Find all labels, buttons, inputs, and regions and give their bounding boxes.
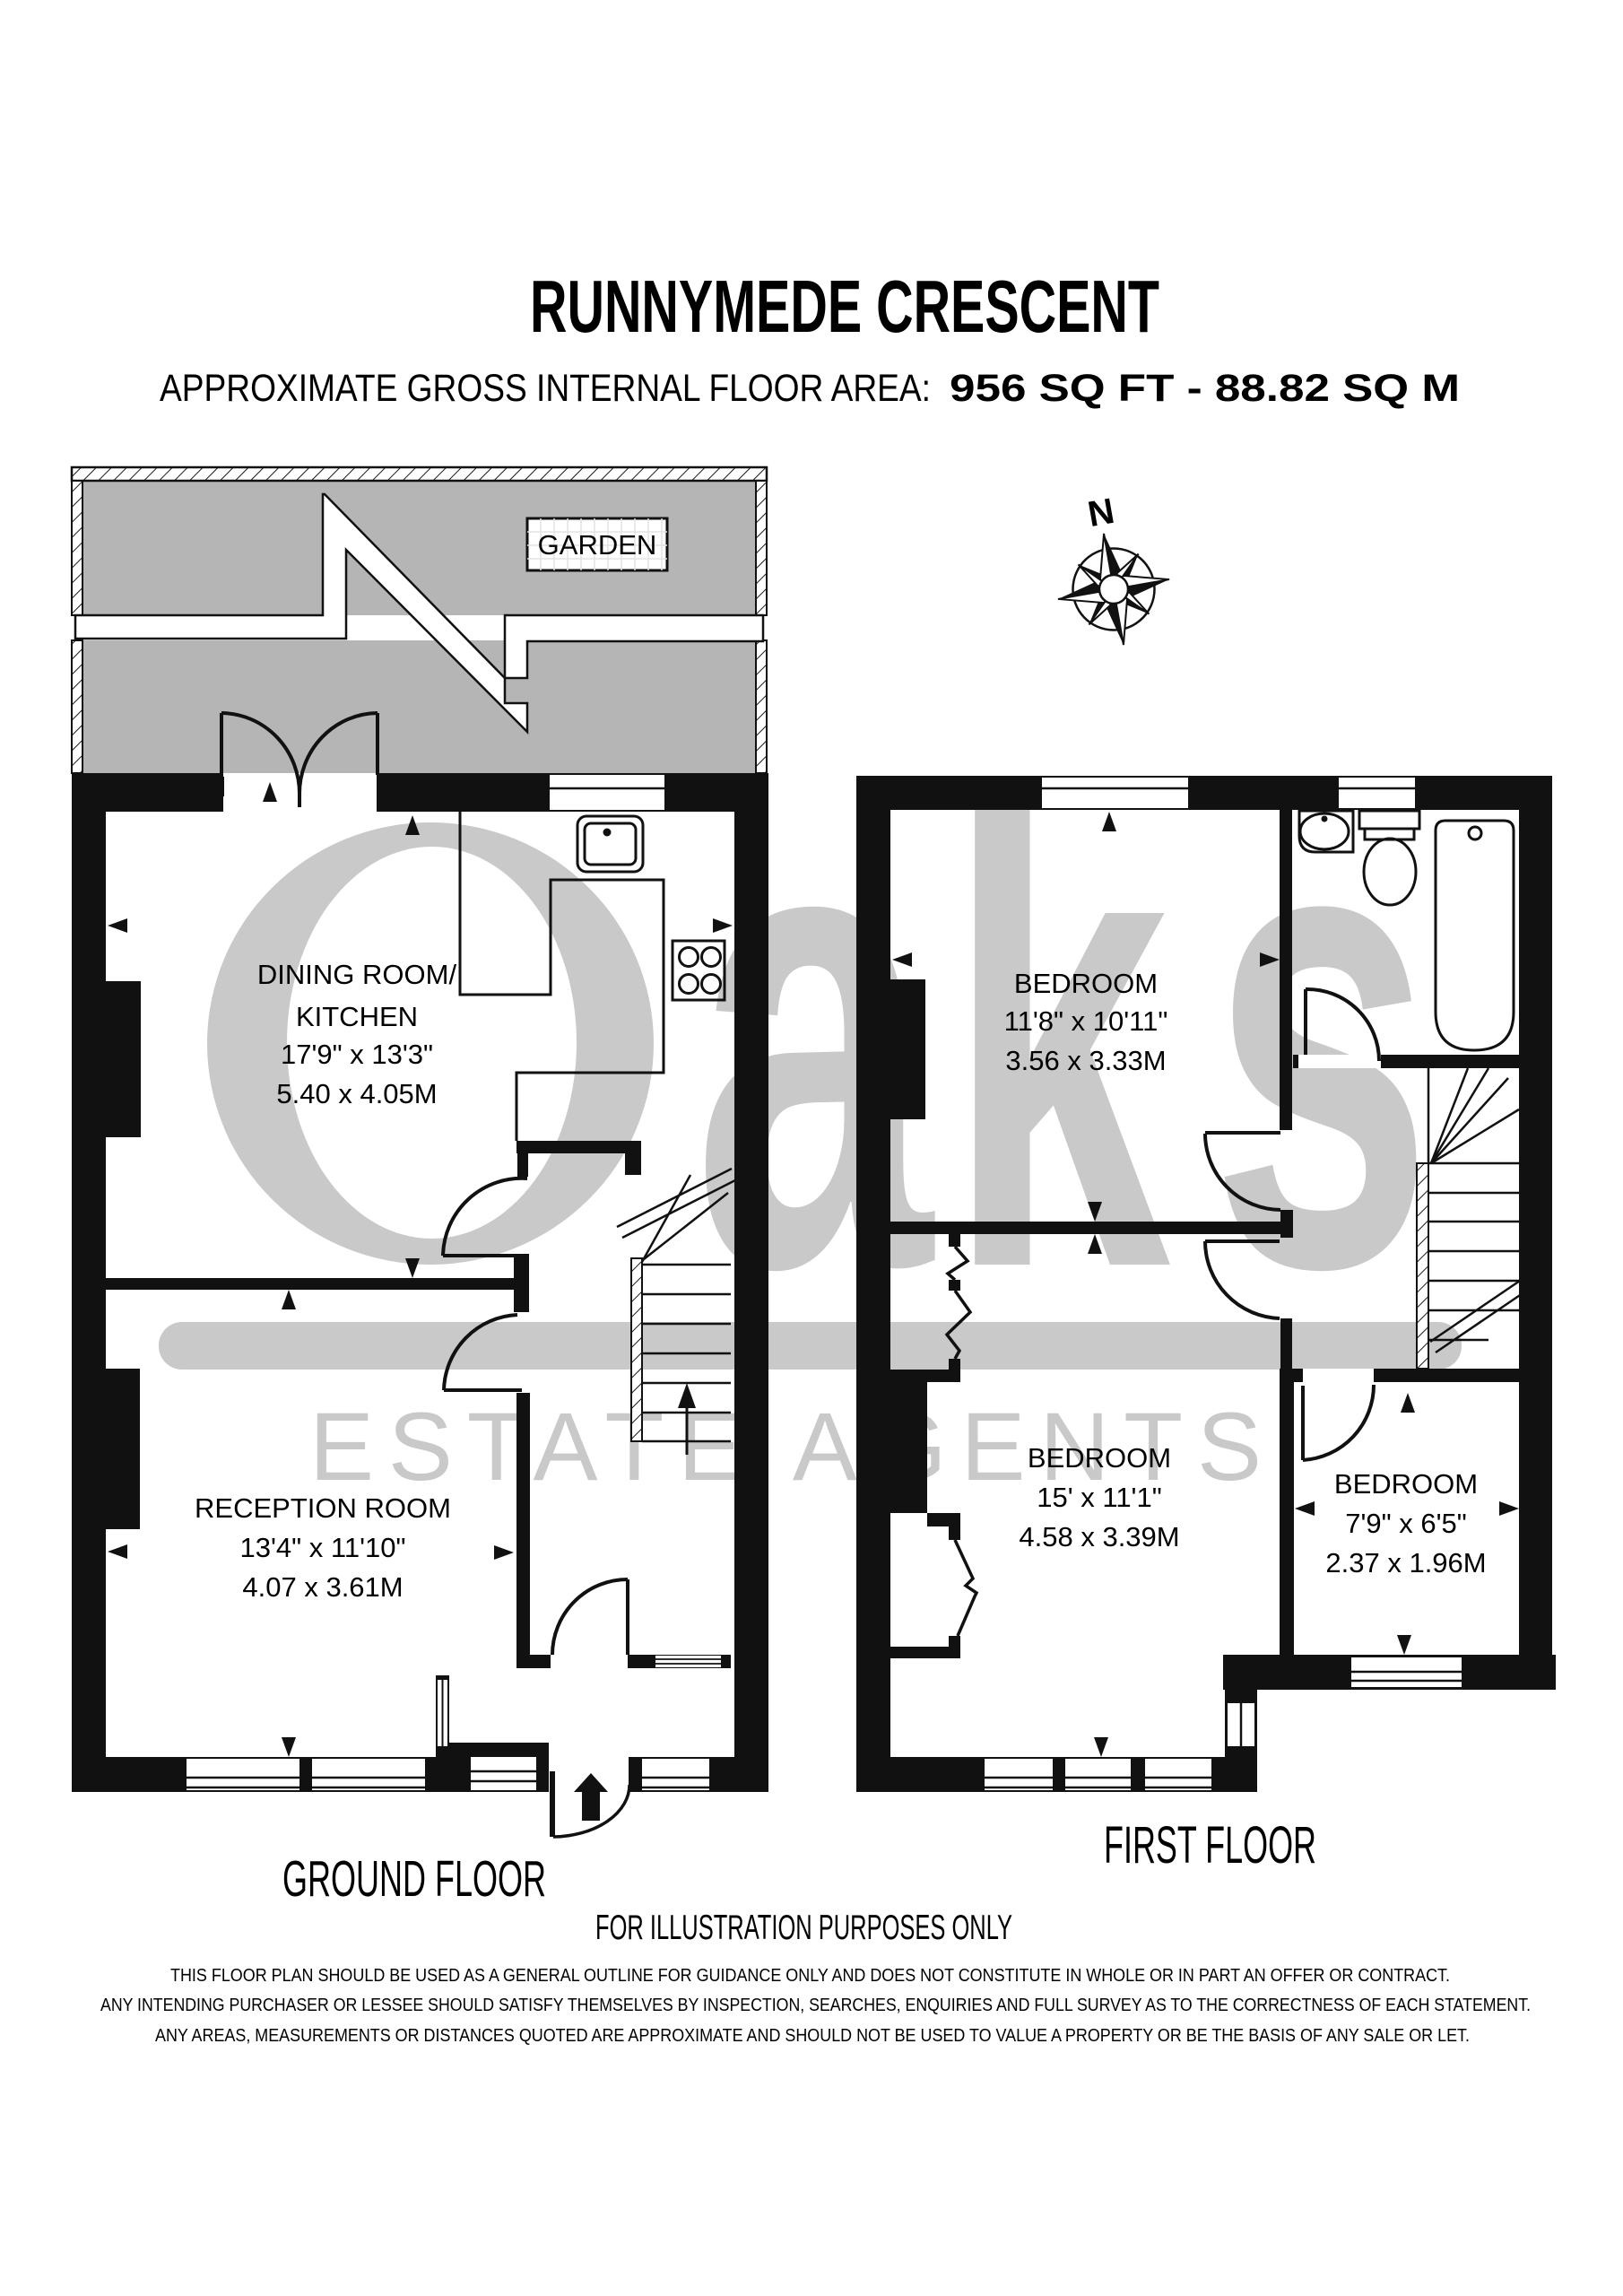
svg-text:RECEPTION ROOM: RECEPTION ROOM — [195, 1492, 451, 1524]
svg-text:13'4" x 11'10": 13'4" x 11'10" — [240, 1532, 406, 1563]
svg-text:17'9" x 13'3": 17'9" x 13'3" — [281, 1039, 433, 1070]
svg-text:BEDROOM: BEDROOM — [1028, 1442, 1171, 1474]
svg-text:2.37 x 1.96M: 2.37 x 1.96M — [1325, 1547, 1486, 1578]
svg-text:7'9" x 6'5": 7'9" x 6'5" — [1345, 1508, 1467, 1539]
svg-text:s: s — [1211, 662, 1433, 1405]
svg-text:APPROXIMATE GROSS INTERNAL FLO: APPROXIMATE GROSS INTERNAL FLOOR AREA: — [160, 367, 931, 410]
svg-text:BEDROOM: BEDROOM — [1014, 968, 1158, 999]
svg-text:ANY AREAS, MEASUREMENTS OR DIS: ANY AREAS, MEASUREMENTS OR DISTANCES QUO… — [155, 2025, 1470, 2046]
svg-text:GARDEN: GARDEN — [538, 529, 657, 561]
svg-text:5.40 x 4.05M: 5.40 x 4.05M — [276, 1078, 437, 1109]
svg-text:4.58 x 3.39M: 4.58 x 3.39M — [1019, 1521, 1179, 1552]
svg-text:KITCHEN: KITCHEN — [296, 1001, 418, 1032]
svg-text:11'8" x 10'11": 11'8" x 10'11" — [1004, 1005, 1168, 1037]
svg-text:DINING ROOM/: DINING ROOM/ — [257, 959, 457, 990]
svg-text:15' x 11'1": 15' x 11'1" — [1037, 1482, 1161, 1513]
svg-text:3.56 x 3.33M: 3.56 x 3.33M — [1005, 1045, 1166, 1076]
svg-text:THIS FLOOR PLAN SHOULD BE USED: THIS FLOOR PLAN SHOULD BE USED AS A GENE… — [170, 1965, 1450, 1986]
svg-text:FIRST FLOOR: FIRST FLOOR — [1104, 1816, 1316, 1874]
svg-text:RUNNYMEDE CRESCENT: RUNNYMEDE CRESCENT — [530, 265, 1159, 348]
svg-text:GROUND FLOOR: GROUND FLOOR — [282, 1850, 546, 1908]
svg-text:ANY INTENDING PURCHASER OR LES: ANY INTENDING PURCHASER OR LESSEE SHOULD… — [100, 1995, 1531, 2015]
svg-text:4.07 x 3.61M: 4.07 x 3.61M — [242, 1571, 403, 1603]
svg-text:FOR ILLUSTRATION PURPOSES ONLY: FOR ILLUSTRATION PURPOSES ONLY — [595, 1909, 1012, 1947]
svg-text:956 SQ FT - 88.82 SQ M: 956 SQ FT - 88.82 SQ M — [950, 367, 1460, 410]
svg-text:BEDROOM: BEDROOM — [1334, 1468, 1478, 1500]
